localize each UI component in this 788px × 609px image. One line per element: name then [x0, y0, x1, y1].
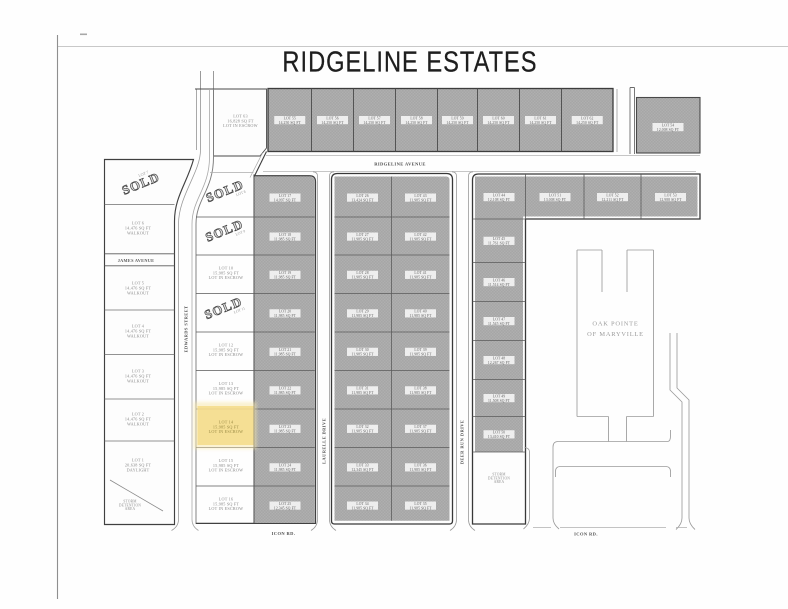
- svg-text:LOT 39: LOT 39: [414, 348, 426, 352]
- svg-text:JAMES AVENUE: JAMES AVENUE: [118, 258, 155, 263]
- svg-text:LOT 47: LOT 47: [493, 317, 505, 321]
- svg-text:LOT 44: LOT 44: [493, 193, 505, 197]
- svg-text:LOT 46: LOT 46: [493, 278, 505, 282]
- svg-text:LOT 40: LOT 40: [414, 310, 426, 314]
- svg-text:LOT IN ESCROW: LOT IN ESCROW: [209, 390, 244, 395]
- svg-text:LOT 58: LOT 58: [410, 116, 422, 120]
- svg-text:LOT 36: LOT 36: [414, 464, 426, 468]
- svg-text:WALKOUT: WALKOUT: [127, 333, 149, 338]
- svg-text:AREA: AREA: [125, 507, 136, 511]
- svg-text:LOT IN ESCROW: LOT IN ESCROW: [209, 429, 244, 434]
- svg-text:LOT 29: LOT 29: [356, 310, 368, 314]
- svg-text:LOT 33: LOT 33: [356, 464, 368, 468]
- svg-text:LOT 53: LOT 53: [664, 193, 676, 197]
- svg-text:DEER RUN DRIVE: DEER RUN DRIVE: [460, 420, 465, 465]
- svg-text:LOT IN ESCROW: LOT IN ESCROW: [209, 506, 244, 511]
- svg-text:LOT 38: LOT 38: [414, 387, 426, 391]
- svg-text:DAYLIGHT: DAYLIGHT: [127, 467, 150, 472]
- svg-text:LOT 61: LOT 61: [534, 116, 546, 120]
- svg-text:LOT 37: LOT 37: [414, 425, 426, 429]
- svg-text:LOT 57: LOT 57: [368, 116, 380, 120]
- svg-text:LOT IN ESCROW: LOT IN ESCROW: [209, 275, 244, 280]
- svg-text:RIDGELINE AVENUE: RIDGELINE AVENUE: [374, 162, 426, 167]
- svg-text:LOT 55: LOT 55: [284, 116, 296, 120]
- svg-text:LOT 60: LOT 60: [492, 116, 504, 120]
- svg-text:WALKOUT: WALKOUT: [127, 230, 149, 235]
- svg-text:WALKOUT: WALKOUT: [127, 290, 149, 295]
- svg-text:ICON RD.: ICON RD.: [574, 532, 598, 537]
- svg-text:LOT 52: LOT 52: [606, 193, 618, 197]
- svg-text:LOT 51: LOT 51: [549, 193, 561, 197]
- svg-text:LOT 26: LOT 26: [356, 194, 368, 198]
- svg-text:LOT 49: LOT 49: [493, 394, 505, 398]
- svg-text:LOT 48: LOT 48: [493, 356, 505, 360]
- svg-text:LOT 45: LOT 45: [493, 237, 505, 241]
- svg-text:LOT 42: LOT 42: [414, 233, 426, 237]
- svg-text:LOT 35: LOT 35: [414, 502, 426, 506]
- svg-text:LOT 43: LOT 43: [414, 194, 426, 198]
- svg-text:LOT 19: LOT 19: [279, 271, 291, 275]
- svg-text:OF MARYVILLE: OF MARYVILLE: [587, 331, 644, 338]
- svg-text:LOT IN ESCROW: LOT IN ESCROW: [209, 467, 244, 472]
- svg-text:LOT 25: LOT 25: [279, 502, 291, 506]
- svg-text:LOT 41: LOT 41: [414, 271, 426, 275]
- svg-text:WALKOUT: WALKOUT: [127, 378, 149, 383]
- svg-text:LOT 59: LOT 59: [451, 116, 463, 120]
- svg-text:LOT 32: LOT 32: [356, 425, 368, 429]
- svg-text:LOT 23: LOT 23: [279, 425, 291, 429]
- svg-text:AREA: AREA: [494, 480, 505, 484]
- svg-text:LOT IN ESCROW: LOT IN ESCROW: [223, 123, 258, 128]
- svg-text:LOT 22: LOT 22: [279, 387, 291, 391]
- svg-text:WALKOUT: WALKOUT: [127, 421, 149, 426]
- svg-text:LOT 34: LOT 34: [356, 502, 368, 506]
- svg-text:LOT 27: LOT 27: [356, 233, 368, 237]
- svg-text:LOT 20: LOT 20: [279, 310, 291, 314]
- svg-text:LOT IN ESCROW: LOT IN ESCROW: [209, 352, 244, 357]
- svg-text:LOT 54: LOT 54: [662, 123, 674, 127]
- svg-text:LOT 17: LOT 17: [279, 194, 291, 198]
- svg-text:LAURELLE DRIVE: LAURELLE DRIVE: [321, 418, 326, 464]
- svg-text:LOT 18: LOT 18: [279, 233, 291, 237]
- svg-text:LOT 24: LOT 24: [279, 464, 291, 468]
- svg-text:EDWARDS STREET: EDWARDS STREET: [183, 306, 188, 353]
- svg-text:LOT 56: LOT 56: [326, 116, 338, 120]
- svg-text:RIDGELINE ESTATES: RIDGELINE ESTATES: [282, 45, 537, 78]
- svg-text:LOT 31: LOT 31: [356, 387, 368, 391]
- svg-text:LOT 30: LOT 30: [356, 348, 368, 352]
- svg-text:OAK POINTE: OAK POINTE: [592, 321, 638, 328]
- svg-text:LOT 50: LOT 50: [493, 431, 505, 435]
- svg-text:LOT 28: LOT 28: [356, 271, 368, 275]
- svg-text:LOT 21: LOT 21: [279, 348, 291, 352]
- svg-text:ICON RD.: ICON RD.: [272, 531, 296, 536]
- svg-text:LOT 62: LOT 62: [581, 116, 593, 120]
